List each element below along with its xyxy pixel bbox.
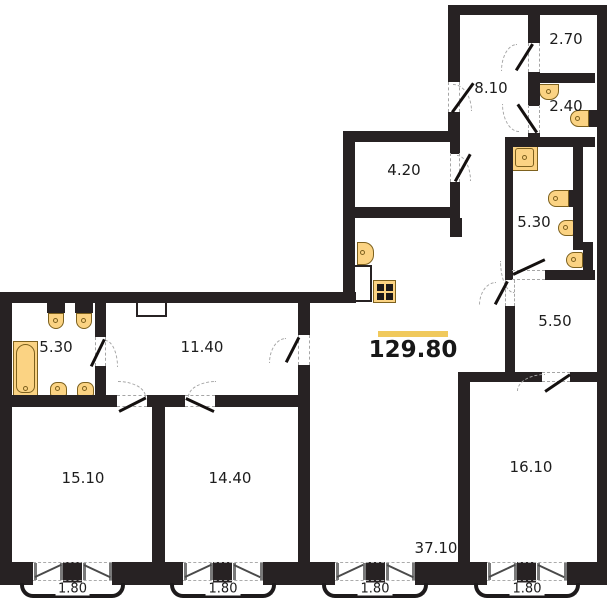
wall-segment xyxy=(528,73,595,83)
room-area-label: 14.40 xyxy=(209,469,252,487)
bidet xyxy=(566,252,583,268)
wall-segment xyxy=(448,5,460,82)
wall-segment xyxy=(570,372,597,382)
room-area-label: 5.30 xyxy=(39,338,72,356)
wall-segment xyxy=(450,182,460,208)
toilet-cistern xyxy=(47,303,65,313)
window-sash xyxy=(185,564,212,578)
window-width-label: 1.80 xyxy=(510,583,545,596)
window-post xyxy=(564,563,567,580)
wall-segment xyxy=(95,303,106,337)
window-sash xyxy=(387,564,414,578)
wall-segment xyxy=(597,5,607,585)
wall-segment xyxy=(147,395,185,407)
wall-segment xyxy=(0,562,33,585)
room-area-label: 37.10 xyxy=(415,539,458,557)
wall-segment xyxy=(152,407,165,562)
wall-segment xyxy=(448,112,460,133)
wall-segment xyxy=(573,242,593,250)
kitchen-sink xyxy=(357,242,374,265)
window-sash xyxy=(84,564,111,578)
wall-segment xyxy=(95,366,106,395)
room-area-label: 15.10 xyxy=(62,469,105,487)
shower xyxy=(511,144,538,171)
washbasin xyxy=(50,382,67,396)
wall-segment xyxy=(458,372,470,562)
window-width-label: 1.80 xyxy=(55,583,90,596)
room-area-label: 11.40 xyxy=(181,338,224,356)
toilet-cistern xyxy=(75,303,93,313)
wall-segment xyxy=(112,562,183,585)
wall-segment xyxy=(528,15,540,43)
window-width-label: 1.80 xyxy=(358,583,393,596)
door-swing-arc xyxy=(105,340,118,367)
wall-segment xyxy=(505,137,595,147)
washbasin xyxy=(548,190,569,207)
washbasin xyxy=(77,382,94,396)
stove xyxy=(373,280,396,303)
wall-segment xyxy=(343,207,460,218)
room-area-label: 5.30 xyxy=(517,213,550,231)
room-area-label: 16.10 xyxy=(510,458,553,476)
wall-segment xyxy=(0,292,356,303)
door-swing-arc xyxy=(501,44,517,71)
window-sash xyxy=(234,564,261,578)
wall-segment xyxy=(505,306,515,372)
window-frame-line xyxy=(335,562,415,563)
wall-niche xyxy=(588,110,597,127)
door-swing-arc xyxy=(188,381,216,397)
window-post xyxy=(260,563,263,580)
wall-segment xyxy=(567,562,607,585)
room-area-label: 2.40 xyxy=(549,97,582,115)
door-jamb-dashes xyxy=(298,335,310,365)
window-sash xyxy=(489,564,516,578)
wall-segment xyxy=(298,365,310,562)
room-area-label: 2.70 xyxy=(549,30,582,48)
hallway-niche xyxy=(136,303,167,317)
wall-segment xyxy=(573,147,583,242)
wall-segment xyxy=(0,395,117,407)
door-swing-arc xyxy=(118,381,146,397)
room-area-label: 4.20 xyxy=(387,161,420,179)
wall-segment xyxy=(545,270,595,280)
wall-segment xyxy=(450,218,462,237)
wall-segment xyxy=(0,292,12,585)
wall-segment xyxy=(343,131,460,142)
window-frame-line xyxy=(33,562,112,563)
door-swing-arc xyxy=(269,338,286,363)
window-sash xyxy=(538,564,565,578)
room-area-label: 5.50 xyxy=(538,312,571,330)
toilet xyxy=(76,313,92,329)
window-sash xyxy=(35,564,62,578)
window-frame-line xyxy=(183,562,263,563)
window-width-label: 1.80 xyxy=(206,583,241,596)
wall-segment xyxy=(298,303,310,335)
wall-segment xyxy=(215,395,310,407)
window-frame-line xyxy=(487,562,567,563)
door-swing-arc xyxy=(502,104,519,132)
toilet xyxy=(558,220,574,236)
room-area-label: 8.10 xyxy=(474,79,507,97)
door-swing-arc xyxy=(479,282,496,305)
wall-segment xyxy=(448,5,607,15)
door-swing-arc xyxy=(457,155,471,181)
wall-segment xyxy=(505,137,513,270)
bathtub xyxy=(13,341,38,396)
wall-segment xyxy=(415,562,487,585)
toilet xyxy=(48,313,64,329)
floor-plan: 2.70 8.10 2.40 4.20 5.30 5.50 11.40 5.30… xyxy=(0,0,610,600)
kitchen-vent-shaft xyxy=(355,265,372,302)
wall-segment xyxy=(263,562,335,585)
total-area-label: 129.80 xyxy=(369,337,458,363)
window-sash xyxy=(337,564,364,578)
